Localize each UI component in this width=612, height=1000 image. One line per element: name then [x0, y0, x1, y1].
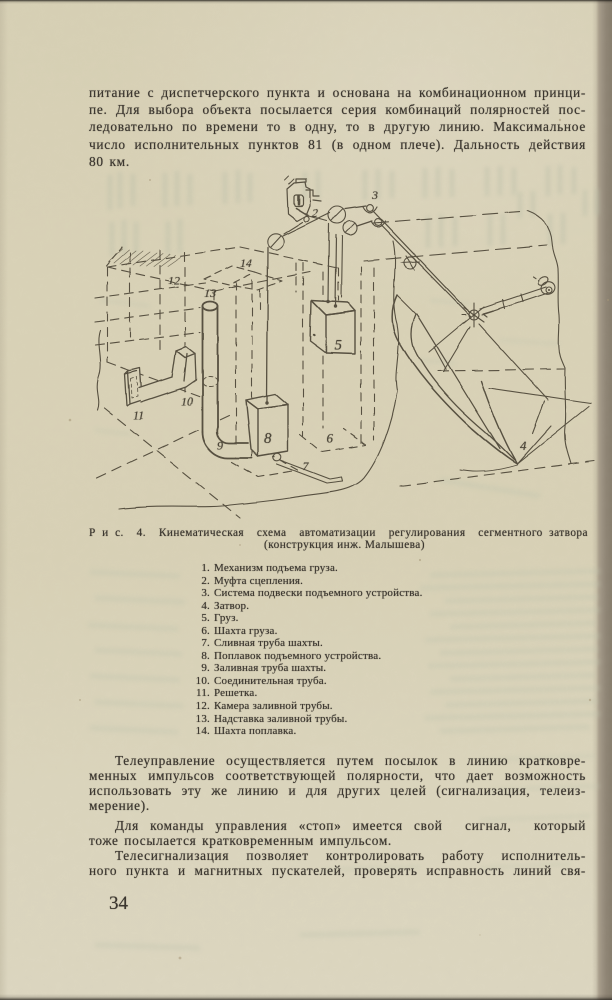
svg-text:6: 6: [326, 431, 333, 446]
svg-text:4: 4: [520, 438, 527, 453]
svg-text:10: 10: [181, 394, 193, 408]
svg-text:8: 8: [264, 431, 272, 447]
svg-text:2: 2: [312, 206, 318, 220]
svg-text:12: 12: [168, 273, 180, 287]
svg-text:13: 13: [204, 286, 216, 300]
svg-text:11: 11: [133, 408, 144, 422]
svg-text:9: 9: [217, 438, 223, 452]
svg-text:3: 3: [371, 188, 378, 202]
svg-text:5: 5: [334, 338, 342, 354]
svg-text:14: 14: [240, 256, 252, 270]
svg-text:7: 7: [303, 459, 310, 473]
